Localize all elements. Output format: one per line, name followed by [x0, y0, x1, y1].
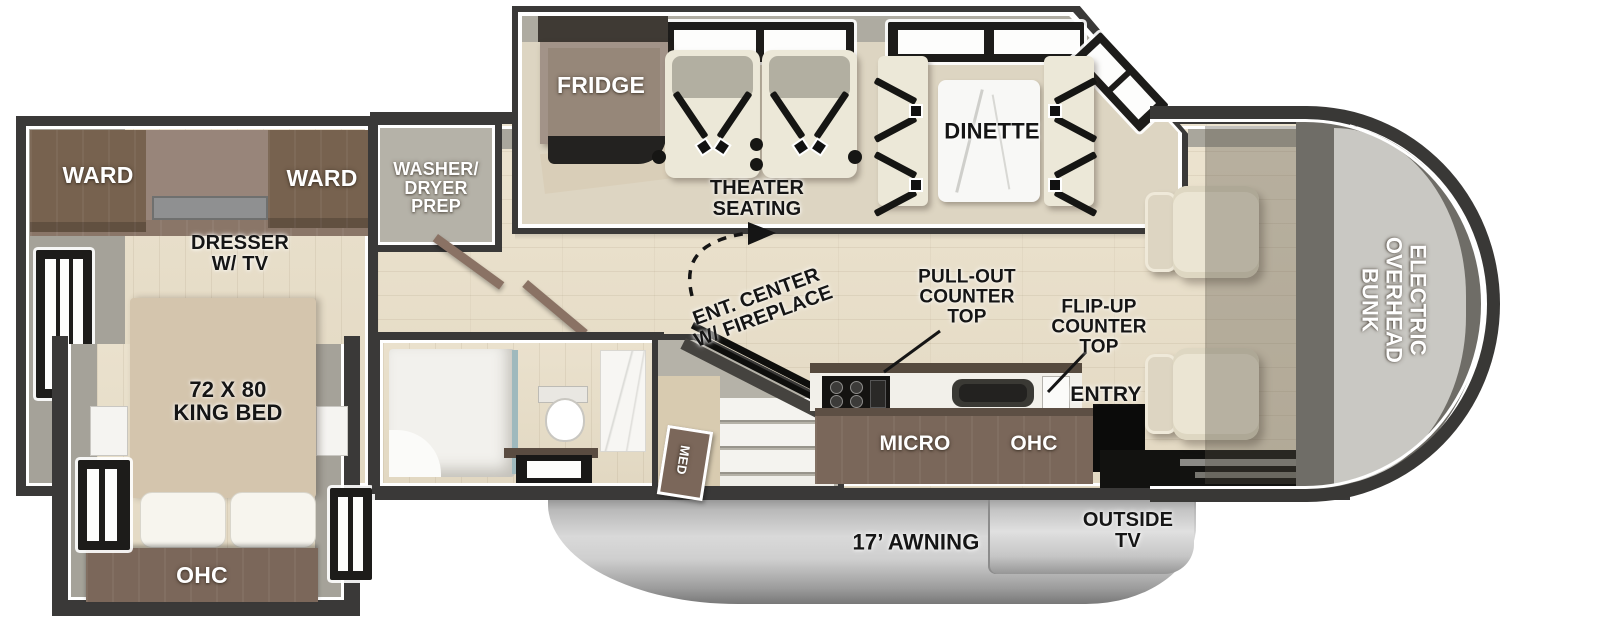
seat-button: [848, 150, 862, 164]
label-awning: 17’ AWNING: [852, 532, 979, 555]
seat-strap: [874, 151, 918, 179]
label-overhead-bunk: ELECTRIC OVERHEAD BUNK: [1357, 237, 1430, 363]
strap-buckle: [1050, 180, 1060, 190]
bed-slide-wall-left: [52, 336, 68, 616]
burner: [830, 395, 843, 408]
theater-seatback: [672, 56, 753, 98]
bed-slide-wall-bottom: [52, 600, 360, 616]
seat-strap: [1054, 151, 1098, 179]
label-flipup-counter: FLIP-UP COUNTER TOP: [1051, 297, 1146, 356]
flip-up-counter: [1042, 376, 1070, 410]
linen-cabinet: [600, 350, 646, 452]
vanity-sink: [516, 455, 592, 483]
stove: [822, 376, 890, 410]
burner: [830, 381, 843, 394]
strap-buckle: [911, 180, 921, 190]
dresser-tv: [152, 196, 268, 220]
strap-buckle: [715, 140, 729, 154]
label-bedroom-ohc: OHC: [176, 564, 228, 588]
cap-outer-wall: [1150, 106, 1500, 502]
theater-seatback: [769, 56, 850, 98]
strap-buckle: [812, 140, 826, 154]
dinette-bench-left: [878, 56, 928, 206]
toilet-bowl: [545, 398, 585, 442]
dinette-bench-right: [1044, 56, 1094, 206]
window-pane: [898, 30, 984, 54]
fridge-counter-edge: [548, 136, 666, 164]
seat-button: [652, 150, 666, 164]
fridge-top: [538, 16, 668, 42]
label-pullout-counter: PULL-OUT COUNTER TOP: [918, 267, 1016, 326]
sink-basin: [959, 384, 1027, 402]
label-micro: MICRO: [880, 433, 951, 455]
window-pane: [338, 497, 348, 571]
window-pane: [105, 469, 117, 541]
label-ward-right: WARD: [286, 167, 357, 191]
nightstand-left: [90, 406, 128, 456]
kitchen-counter-edge: [810, 363, 1082, 373]
seat-strap: [1054, 115, 1098, 143]
bed-slide-window-right: [330, 488, 372, 580]
label-dinette: DINETTE: [944, 121, 1040, 144]
label-entry: ENTRY: [1070, 384, 1141, 406]
burner: [850, 395, 863, 408]
rv-floorplan: WARD WARD DRESSER W/ TV 72 X 80 KING BED…: [0, 0, 1600, 626]
label-washer-dryer: WASHER/ DRYER PREP: [393, 160, 478, 216]
seat-strap: [874, 115, 918, 143]
seat-button: [750, 158, 763, 171]
strap-buckle: [794, 140, 808, 154]
nightstand-right: [316, 406, 348, 456]
window-pane: [87, 469, 99, 541]
label-king-bed: 72 X 80 KING BED: [173, 379, 282, 425]
strap-buckle: [911, 106, 921, 116]
label-fridge: FRIDGE: [557, 74, 645, 98]
pillow: [140, 492, 226, 548]
label-ward-left: WARD: [62, 164, 133, 188]
seat-button: [750, 138, 763, 151]
kitchen-sink: [952, 379, 1034, 407]
seat-strap: [1054, 77, 1098, 105]
label-outside-tv: OUTSIDE TV: [1083, 510, 1173, 552]
strap-buckle: [1050, 106, 1060, 116]
burner: [850, 381, 863, 394]
sink-basin: [527, 461, 581, 478]
strap-buckle: [697, 140, 711, 154]
bed-slide-window-left: [78, 460, 130, 550]
label-dresser-tv: DRESSER W/ TV: [191, 233, 289, 275]
theater-seat-left: [665, 50, 760, 178]
label-theater-seating: THEATER SEATING: [710, 178, 804, 220]
stove-grate: [870, 380, 886, 408]
seat-strap: [874, 77, 918, 105]
window-pane: [994, 30, 1080, 54]
pillow: [230, 492, 316, 548]
theater-seat-right: [762, 50, 857, 178]
window-pane: [353, 497, 363, 571]
label-kitchen-ohc: OHC: [1010, 433, 1057, 455]
